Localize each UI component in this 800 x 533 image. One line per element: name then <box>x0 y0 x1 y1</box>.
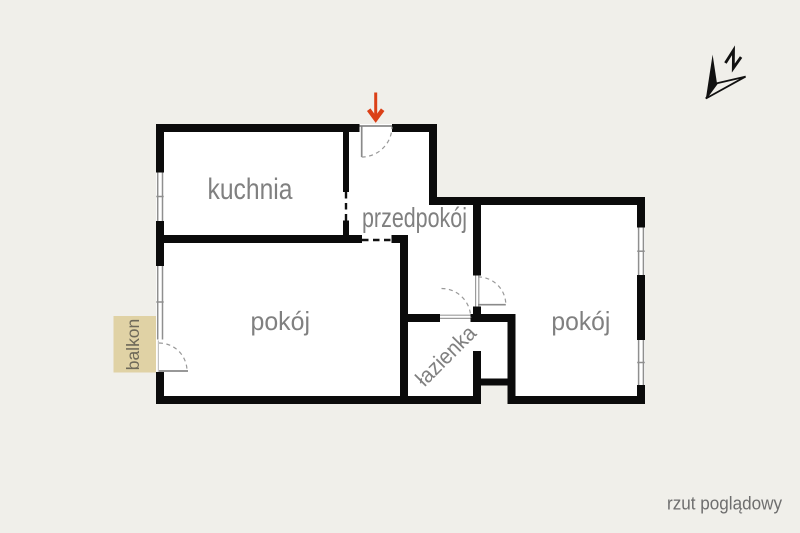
svg-text:przedpokój: przedpokój <box>362 202 467 233</box>
svg-text:rzut poglądowy: rzut poglądowy <box>667 494 782 514</box>
svg-text:kuchnia: kuchnia <box>208 173 293 206</box>
svg-text:pokój: pokój <box>551 306 610 336</box>
svg-text:pokój: pokój <box>251 306 311 336</box>
svg-text:balkon: balkon <box>123 319 143 371</box>
